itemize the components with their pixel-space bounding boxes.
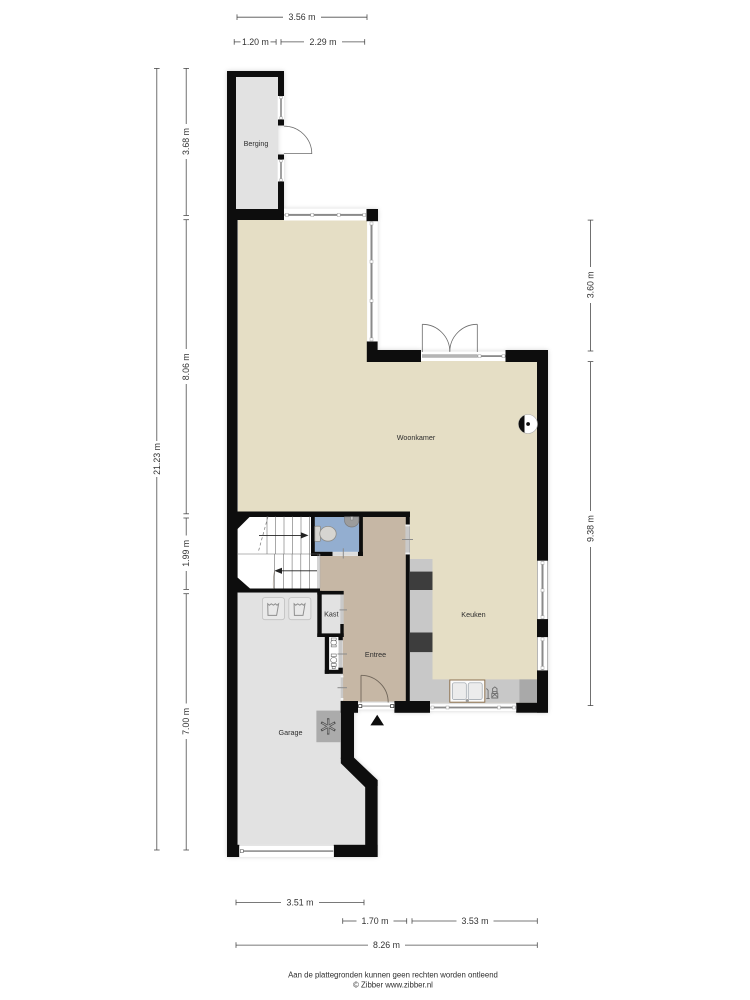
svg-text:Kast: Kast (324, 610, 338, 619)
svg-text:1.99 m: 1.99 m (181, 540, 191, 567)
svg-text:Woonkamer: Woonkamer (397, 433, 436, 442)
svg-text:3.56 m: 3.56 m (289, 12, 316, 22)
svg-text:7.00 m: 7.00 m (181, 708, 191, 735)
svg-text:© Zibber www.zibber.nl: © Zibber www.zibber.nl (353, 981, 433, 990)
svg-text:9.38 m: 9.38 m (586, 515, 596, 542)
svg-text:3.60 m: 3.60 m (586, 271, 596, 298)
svg-text:Keuken: Keuken (461, 610, 485, 619)
svg-text:21.23 m: 21.23 m (152, 443, 162, 475)
svg-text:1.20 m: 1.20 m (242, 37, 269, 47)
svg-text:8.26 m: 8.26 m (373, 940, 400, 950)
svg-text:1.70 m: 1.70 m (362, 916, 389, 926)
svg-text:3.51 m: 3.51 m (287, 897, 314, 907)
svg-text:Berging: Berging (244, 139, 269, 148)
svg-text:2.29 m: 2.29 m (310, 37, 337, 47)
svg-text:3.53 m: 3.53 m (462, 916, 489, 926)
svg-text:3.68 m: 3.68 m (181, 128, 191, 155)
svg-text:Garage: Garage (279, 728, 303, 737)
svg-text:8.06 m: 8.06 m (181, 353, 191, 380)
svg-text:Aan de plattegronden kunnen ge: Aan de plattegronden kunnen geen rechten… (288, 971, 498, 980)
svg-text:Entree: Entree (365, 650, 386, 659)
